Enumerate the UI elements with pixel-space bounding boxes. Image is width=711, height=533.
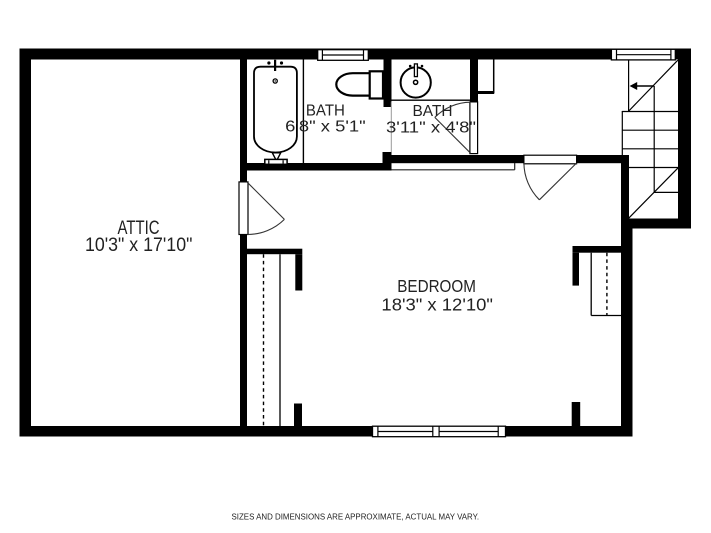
svg-text:18'3" x 12'10": 18'3" x 12'10" <box>381 295 493 315</box>
svg-text:BEDROOM: BEDROOM <box>397 276 476 296</box>
svg-text:10'3" x 17'10": 10'3" x 17'10" <box>85 235 192 256</box>
svg-text:SIZES AND DIMENSIONS ARE APPRO: SIZES AND DIMENSIONS ARE APPROXIMATE, AC… <box>231 513 479 522</box>
svg-text:6'8" x 5'1": 6'8" x 5'1" <box>285 119 366 136</box>
svg-text:3'11" x 4'8": 3'11" x 4'8" <box>386 120 476 137</box>
svg-text:BATH: BATH <box>306 103 345 120</box>
svg-text:BATH: BATH <box>413 103 453 120</box>
